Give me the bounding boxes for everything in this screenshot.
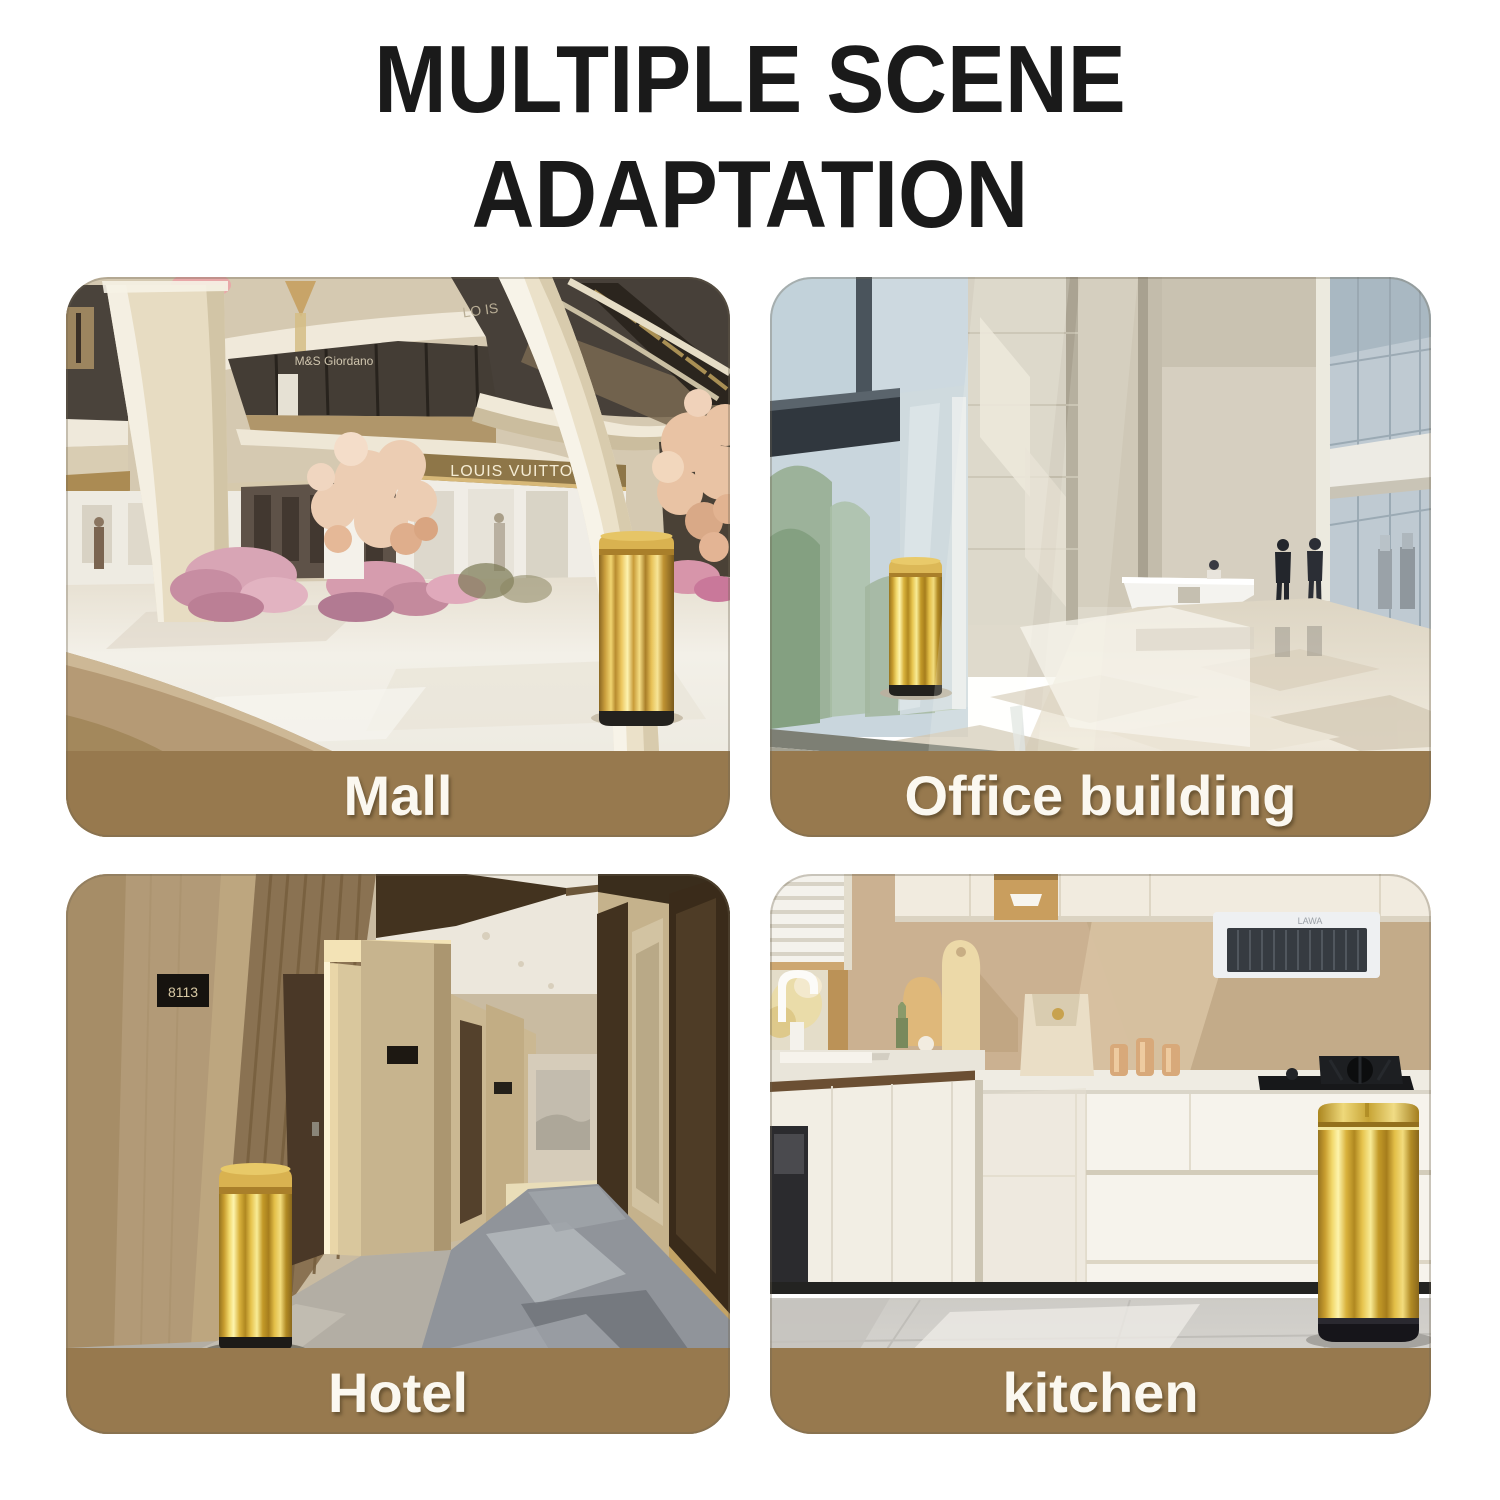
svg-text:LAWA: LAWA [1298, 916, 1323, 926]
svg-text:M&S Giordano: M&S Giordano [295, 354, 374, 368]
svg-text:ON: ON [519, 281, 542, 300]
svg-text:LO IS: LO IS [461, 300, 499, 321]
svg-text:8113: 8113 [168, 984, 198, 1000]
svg-text:LOUIS VUITTON: LOUIS VUITTON [450, 463, 585, 480]
